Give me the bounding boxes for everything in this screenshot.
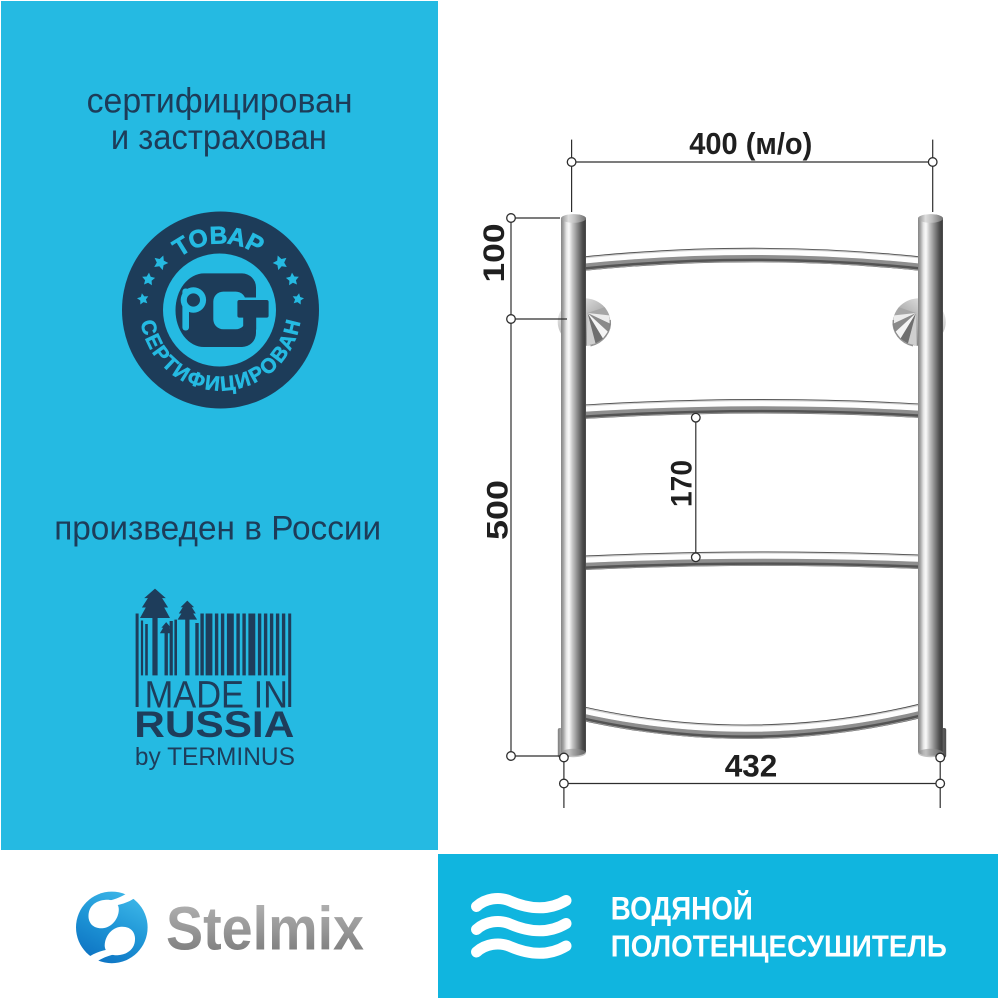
svg-text:произведен в России: произведен в России [54,510,381,548]
svg-text:и застрахован: и застрахован [111,117,327,157]
svg-text:by TERMINUS: by TERMINUS [135,743,295,771]
svg-text:500: 500 [482,480,515,540]
svg-text:400 (м/о): 400 (м/о) [689,126,812,161]
svg-text:RUSSIA: RUSSIA [134,704,294,745]
svg-text:сертифицирован: сертифицирован [87,81,353,121]
svg-text:ВОДЯНОЙ: ВОДЯНОЙ [611,889,753,927]
svg-text:170: 170 [665,460,698,507]
svg-text:Stelmix: Stelmix [166,895,364,963]
svg-text:100: 100 [478,224,511,283]
svg-text:432: 432 [725,748,778,784]
svg-text:ПОЛОТЕНЦЕСУШИТЕЛЬ: ПОЛОТЕНЦЕСУШИТЕЛЬ [611,928,947,963]
